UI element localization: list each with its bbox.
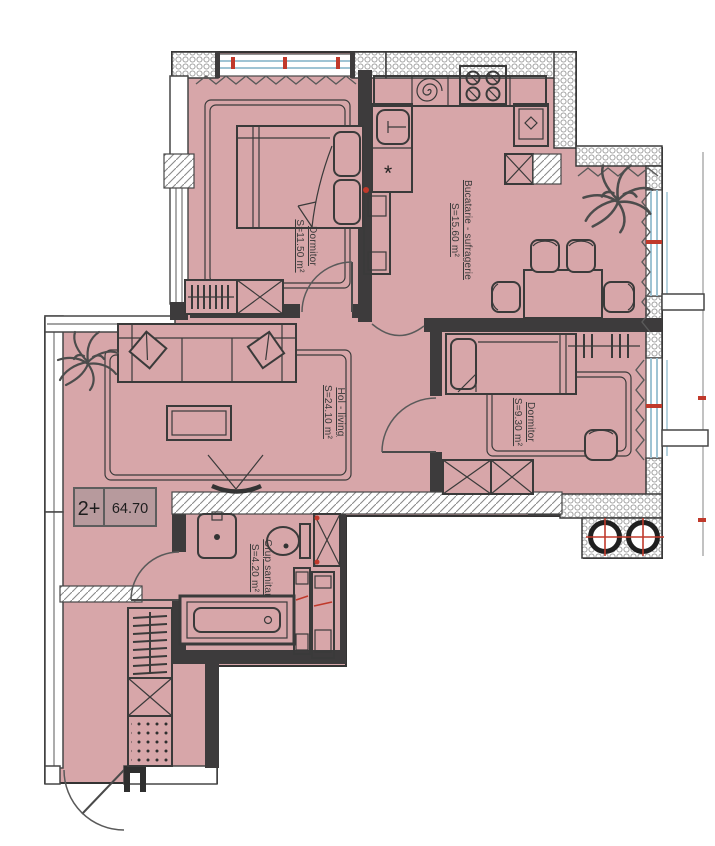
bedroom-2-area: S=9.30 m² <box>512 398 523 447</box>
neighbor-walls <box>662 152 708 556</box>
bathtub <box>180 596 294 644</box>
bedroom-2-name: Dormitor <box>525 402 536 442</box>
sofa <box>118 324 296 382</box>
badge-room-count: 2+ <box>78 498 101 520</box>
window-bedroom-2-right <box>646 358 662 458</box>
washer-symbol: * <box>384 162 392 185</box>
window-kitchen-right <box>646 190 662 296</box>
unit-badge: 2+ 64.70 <box>74 488 156 526</box>
double-bed <box>237 126 363 228</box>
bathroom-area: S=4.20 m² <box>249 544 260 593</box>
bedroom-1-name: Dormitor <box>307 226 318 266</box>
badge-area-value: 64.70 <box>112 501 148 517</box>
single-bed <box>446 334 576 394</box>
hall-wardrobe <box>128 608 172 766</box>
floor-plan-svg: * <box>0 0 715 846</box>
wardrobe-bedroom-1 <box>185 280 283 314</box>
bathroom-name: Grup sanitar <box>262 539 273 597</box>
bedroom-1-area: S=11.50 m² <box>294 219 305 273</box>
floor-plan-page: * <box>0 0 715 846</box>
desk-chair-bedroom-2 <box>585 430 617 460</box>
window-bedroom-1-top <box>215 52 355 78</box>
bathroom-sink <box>198 512 236 558</box>
hall-living-name: Hol - living <box>335 387 346 436</box>
kitchen-area: S=15.60 m² <box>449 203 460 257</box>
kitchen-cabinet-x <box>505 154 561 184</box>
hall-living-area: S=24.10 m² <box>322 385 333 439</box>
kitchen-sink <box>377 110 409 144</box>
wardrobe-bedroom-2 <box>443 460 533 494</box>
kitchen-name: Bucatarie - sufragerie <box>462 180 473 280</box>
